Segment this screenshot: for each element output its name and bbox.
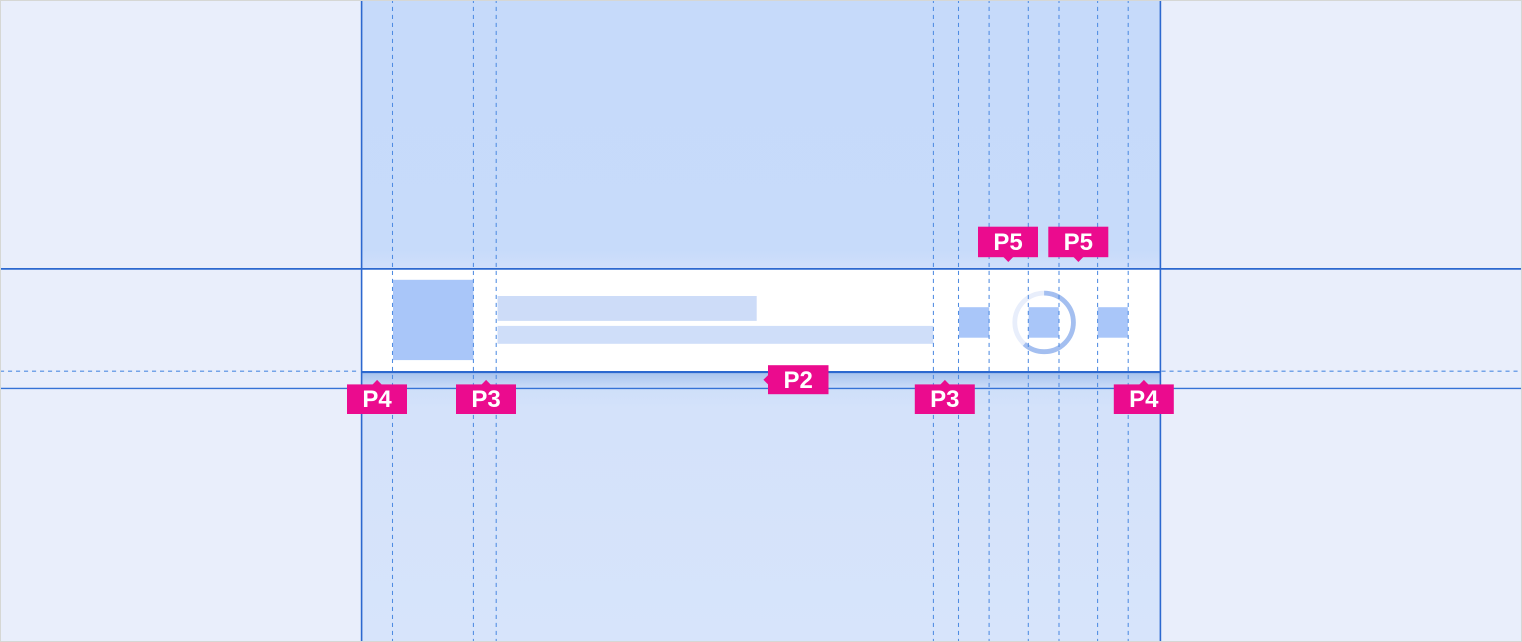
svg-text:P5: P5 [1064,229,1093,256]
svg-text:P5: P5 [993,229,1022,256]
svg-text:P4: P4 [1129,386,1159,413]
svg-text:P3: P3 [930,386,959,413]
svg-text:P2: P2 [784,367,813,394]
svg-text:P3: P3 [471,386,500,413]
svg-text:P4: P4 [362,386,392,413]
